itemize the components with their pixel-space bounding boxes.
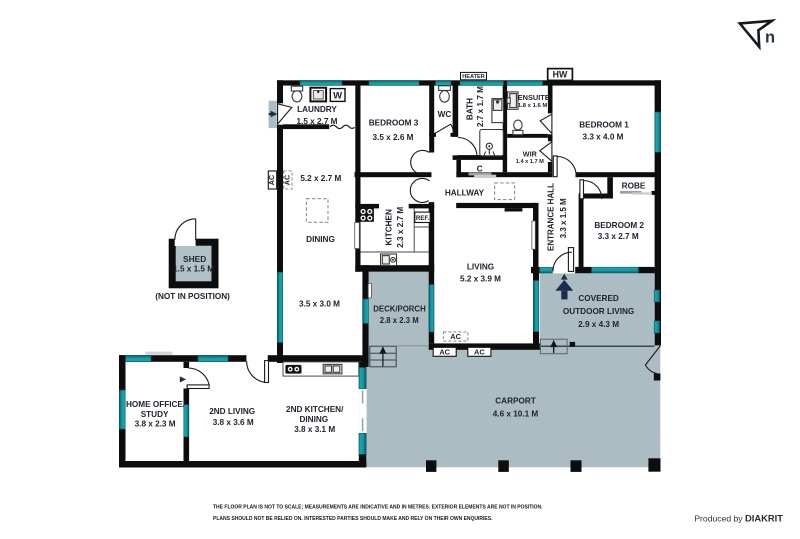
svg-text:(NOT IN POSITION): (NOT IN POSITION) — [155, 292, 230, 301]
svg-text:SHED: SHED — [183, 254, 206, 264]
svg-text:5.2 x 3.9 M: 5.2 x 3.9 M — [460, 274, 501, 283]
svg-text:COVERED: COVERED — [578, 294, 619, 303]
svg-text:Produced by DIAKRIT: Produced by DIAKRIT — [694, 512, 783, 523]
svg-text:C: C — [477, 163, 483, 173]
svg-text:2.3 x 2.7 M: 2.3 x 2.7 M — [396, 207, 405, 248]
svg-text:1.8 x 1.6 M: 1.8 x 1.6 M — [518, 103, 548, 109]
svg-text:ROBE: ROBE — [622, 181, 646, 190]
svg-text:HALLWAY: HALLWAY — [445, 189, 485, 198]
svg-text:DECK/PORCH: DECK/PORCH — [373, 304, 426, 313]
svg-text:3.5 x 2.6 M: 3.5 x 2.6 M — [373, 133, 414, 142]
svg-text:LIVING: LIVING — [467, 262, 494, 271]
svg-text:AC: AC — [283, 175, 292, 185]
svg-text:3.8 x 3.6 M: 3.8 x 3.6 M — [213, 418, 254, 427]
svg-text:DINING: DINING — [299, 415, 328, 424]
svg-text:STUDY: STUDY — [141, 410, 169, 419]
svg-text:2.7 x 1.7 M: 2.7 x 1.7 M — [476, 86, 485, 127]
svg-text:HEATER: HEATER — [462, 74, 485, 80]
svg-text:W: W — [333, 91, 342, 102]
svg-text:3.5 x 3.0 M: 3.5 x 3.0 M — [299, 299, 340, 308]
svg-text:AC: AC — [450, 332, 461, 341]
svg-text:HOME OFFICE/: HOME OFFICE/ — [126, 400, 186, 409]
svg-text:WC: WC — [438, 110, 452, 119]
svg-text:3.3 x 2.7 M: 3.3 x 2.7 M — [598, 232, 639, 241]
svg-text:AC: AC — [474, 347, 485, 356]
svg-text:2ND KITCHEN/: 2ND KITCHEN/ — [286, 405, 344, 414]
svg-text:LAUNDRY: LAUNDRY — [297, 105, 337, 114]
svg-text:3.8 x 3.1 M: 3.8 x 3.1 M — [294, 425, 335, 434]
svg-text:2.8 x 2.3 M: 2.8 x 2.3 M — [380, 316, 419, 325]
svg-text:BEDROOM 3: BEDROOM 3 — [369, 118, 419, 127]
svg-text:4.6 x 10.1 M: 4.6 x 10.1 M — [493, 409, 539, 418]
svg-text:REF.: REF. — [416, 215, 430, 222]
svg-text:HW: HW — [553, 70, 568, 80]
svg-text:BATH: BATH — [466, 98, 475, 120]
svg-text:CARPORT: CARPORT — [495, 396, 535, 405]
svg-text:1.5 x 2.7 M: 1.5 x 2.7 M — [297, 117, 338, 126]
svg-text:WIR: WIR — [523, 150, 538, 159]
svg-text:KITCHEN: KITCHEN — [384, 209, 393, 245]
svg-text:2.9 x 4.3 M: 2.9 x 4.3 M — [578, 320, 619, 329]
svg-text:ENTRANCE HALL: ENTRANCE HALL — [546, 183, 555, 251]
svg-text:BEDROOM 2: BEDROOM 2 — [594, 221, 644, 230]
svg-text:AC: AC — [439, 347, 450, 356]
svg-text:BEDROOM 1: BEDROOM 1 — [579, 120, 629, 129]
svg-text:5.2 x 2.7 M: 5.2 x 2.7 M — [300, 174, 341, 183]
svg-text:1.5 x 1.5 M: 1.5 x 1.5 M — [173, 265, 214, 274]
svg-text:n: n — [765, 29, 775, 47]
svg-text:3.8 x 2.3 M: 3.8 x 2.3 M — [135, 419, 176, 428]
svg-text:DINING: DINING — [306, 235, 335, 244]
svg-text:AC: AC — [267, 175, 276, 185]
svg-text:OUTDOOR LIVING: OUTDOOR LIVING — [563, 307, 634, 316]
svg-text:3.3 x 4.0 M: 3.3 x 4.0 M — [583, 132, 624, 141]
svg-text:ENSUITE: ENSUITE — [518, 93, 550, 102]
svg-text:THE FLOOR PLAN IS NOT TO SCALE: THE FLOOR PLAN IS NOT TO SCALE; MEASUREM… — [213, 505, 543, 511]
svg-text:2ND LIVING: 2ND LIVING — [209, 407, 255, 416]
svg-text:3.3 x 1.5 M: 3.3 x 1.5 M — [559, 198, 568, 238]
svg-text:PLANS SHOULD NOT BE RELIED ON.: PLANS SHOULD NOT BE RELIED ON. INTERESTE… — [213, 516, 493, 522]
svg-text:1.4 x 1.7 M: 1.4 x 1.7 M — [516, 159, 544, 165]
